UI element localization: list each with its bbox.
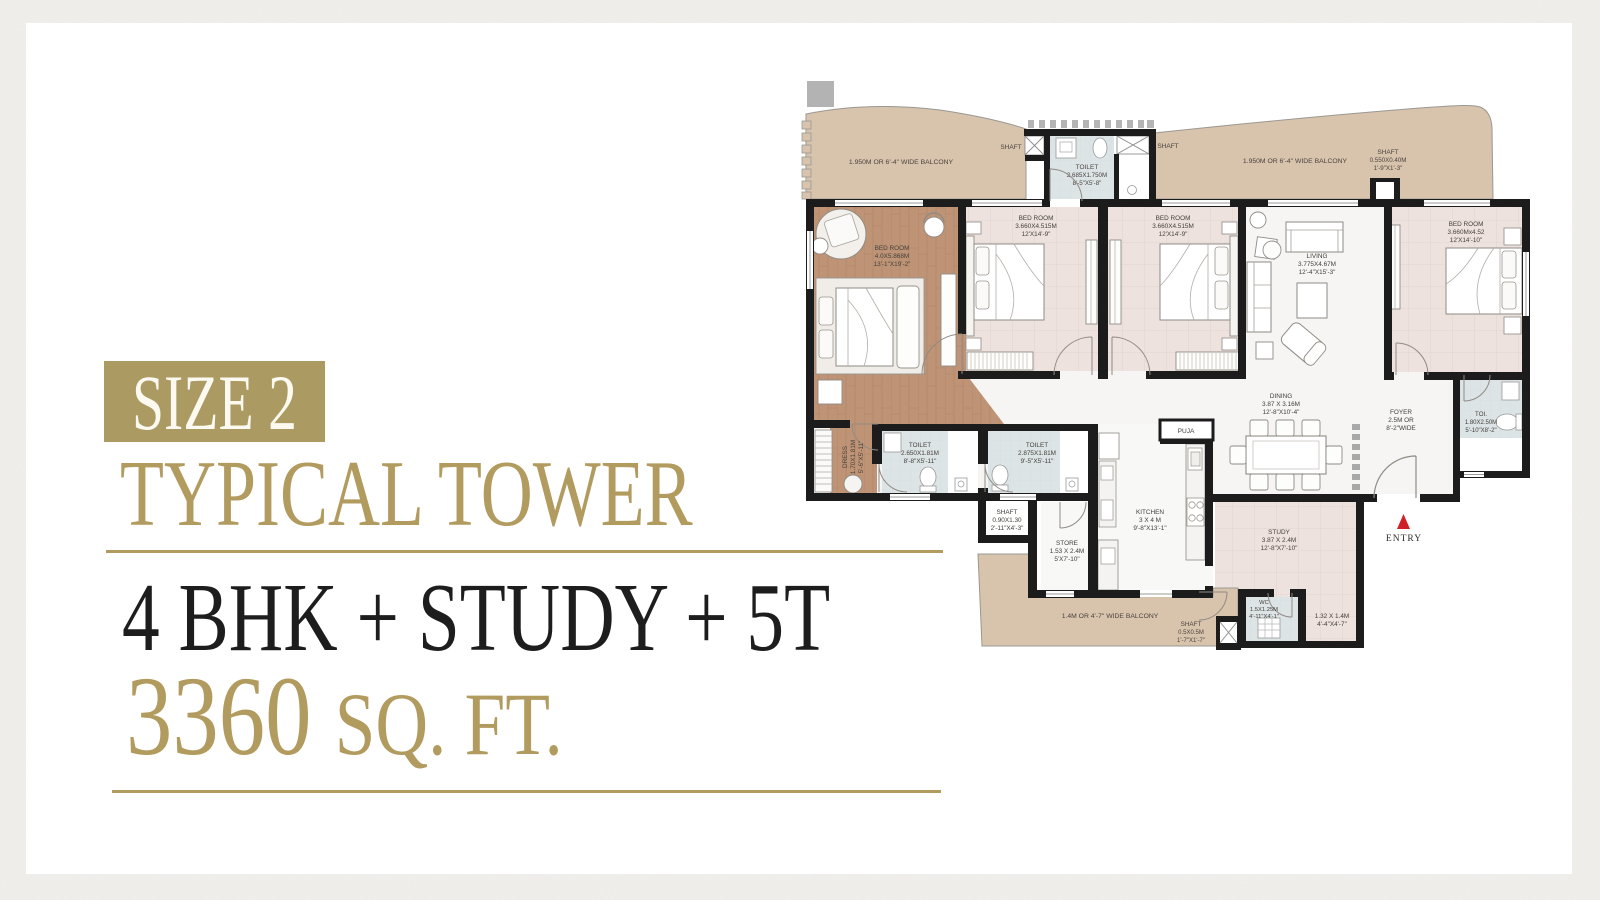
svg-text:5'X7'-10": 5'X7'-10"	[1054, 556, 1079, 563]
svg-text:8'-8"X5'-11": 8'-8"X5'-11"	[904, 458, 937, 465]
svg-text:4'-11"X4'-1": 4'-11"X4'-1"	[1249, 614, 1279, 620]
svg-text:BED ROOM: BED ROOM	[1449, 221, 1484, 228]
svg-text:BED ROOM: BED ROOM	[875, 245, 910, 252]
svg-text:2.685X1.750M: 2.685X1.750M	[1067, 172, 1107, 179]
svg-text:1.950M OR 6'-4" WIDE BALCONY: 1.950M OR 6'-4" WIDE BALCONY	[849, 159, 954, 166]
svg-text:LIVING: LIVING	[1307, 253, 1328, 260]
svg-text:TOI.: TOI.	[1475, 411, 1487, 418]
svg-text:4'-4"X4'-7": 4'-4"X4'-7"	[1317, 621, 1347, 628]
svg-text:BED ROOM: BED ROOM	[1019, 215, 1054, 222]
svg-text:13'-1"X19'-2": 13'-1"X19'-2"	[874, 261, 911, 268]
svg-text:8'-2"WIDE: 8'-2"WIDE	[1386, 425, 1415, 432]
svg-text:2'-11"X4'-3": 2'-11"X4'-3"	[991, 525, 1024, 532]
svg-text:STORE: STORE	[1056, 540, 1078, 547]
svg-text:1.80X2.50M: 1.80X2.50M	[1465, 420, 1497, 426]
svg-text:3.660X4.515M: 3.660X4.515M	[1015, 223, 1057, 230]
svg-text:1.53 X 2.4M: 1.53 X 2.4M	[1050, 548, 1084, 555]
svg-text:0.550X0.40M: 0.550X0.40M	[1370, 157, 1407, 164]
svg-text:2.650X1.81M: 2.650X1.81M	[901, 450, 939, 457]
svg-text:3.775X4.67M: 3.775X4.67M	[1298, 261, 1336, 268]
svg-text:2.875X1.81M: 2.875X1.81M	[1018, 450, 1056, 457]
svg-text:3.87 X 3.16M: 3.87 X 3.16M	[1262, 401, 1300, 408]
svg-text:3.660X4.515M: 3.660X4.515M	[1152, 223, 1194, 230]
svg-text:1.5X1.25M: 1.5X1.25M	[1250, 607, 1278, 613]
svg-text:SHAFT: SHAFT	[1157, 143, 1178, 150]
svg-text:4.0X5.868M: 4.0X5.868M	[875, 253, 909, 260]
svg-text:12'X14'-10": 12'X14'-10"	[1450, 237, 1482, 244]
svg-text:12'-8"X10'-4": 12'-8"X10'-4"	[1263, 409, 1300, 416]
svg-text:ENTRY: ENTRY	[1386, 534, 1422, 544]
svg-text:TOILET: TOILET	[1076, 164, 1099, 171]
svg-text:WC: WC	[1259, 600, 1269, 606]
svg-text:SHAFT: SHAFT	[997, 509, 1018, 516]
svg-text:BED ROOM: BED ROOM	[1156, 215, 1191, 222]
svg-text:KITCHEN: KITCHEN	[1136, 509, 1164, 516]
svg-text:12'-4"X15'-3": 12'-4"X15'-3"	[1299, 269, 1336, 276]
svg-text:SHAFT: SHAFT	[1181, 621, 1202, 628]
svg-text:1.4M OR 4'-7" WIDE BALCONY: 1.4M OR 4'-7" WIDE BALCONY	[1062, 613, 1159, 620]
svg-text:0.5X0.5M: 0.5X0.5M	[1178, 630, 1204, 636]
svg-text:0.90X1.30: 0.90X1.30	[992, 517, 1022, 524]
svg-text:3 X 4 M: 3 X 4 M	[1139, 517, 1161, 524]
svg-text:2.5M OR: 2.5M OR	[1388, 417, 1414, 424]
svg-text:TOILET: TOILET	[909, 442, 931, 449]
svg-text:1.32 X 1.4M: 1.32 X 1.4M	[1315, 613, 1349, 620]
svg-text:1'-7"X1'-7": 1'-7"X1'-7"	[1177, 638, 1205, 644]
svg-text:1.950M OR 6'-4" WIDE BALCONY: 1.950M OR 6'-4" WIDE BALCONY	[1243, 158, 1348, 165]
svg-text:12'X14'-9": 12'X14'-9"	[1159, 231, 1188, 238]
svg-text:9'-8"X13'-1": 9'-8"X13'-1"	[1133, 525, 1166, 532]
svg-text:12'-8"X7'-10": 12'-8"X7'-10"	[1261, 545, 1298, 552]
svg-text:9'-5"X5'-11": 9'-5"X5'-11"	[1021, 458, 1054, 465]
svg-text:SHAFT: SHAFT	[1377, 149, 1398, 156]
svg-text:12'X14'-9": 12'X14'-9"	[1022, 231, 1051, 238]
svg-text:PUJA: PUJA	[1178, 428, 1195, 435]
svg-text:3.87 X 2.4M: 3.87 X 2.4M	[1262, 537, 1296, 544]
svg-text:FOYER: FOYER	[1390, 409, 1412, 416]
svg-text:1'-9"X1'-3": 1'-9"X1'-3"	[1374, 165, 1403, 172]
svg-text:TOILET: TOILET	[1026, 442, 1048, 449]
svg-text:5'-6"X5'-11": 5'-6"X5'-11"	[858, 441, 865, 474]
svg-text:SHAFT: SHAFT	[1000, 144, 1021, 151]
svg-text:5'-10"X8'-2": 5'-10"X8'-2"	[1465, 428, 1496, 434]
svg-text:3.660Mx4.52: 3.660Mx4.52	[1448, 229, 1485, 236]
svg-text:STUDY: STUDY	[1268, 529, 1290, 536]
svg-text:DRESS: DRESS	[842, 446, 849, 468]
svg-text:DINING: DINING	[1270, 393, 1292, 400]
svg-text:1.70X1.81M: 1.70X1.81M	[850, 440, 857, 474]
